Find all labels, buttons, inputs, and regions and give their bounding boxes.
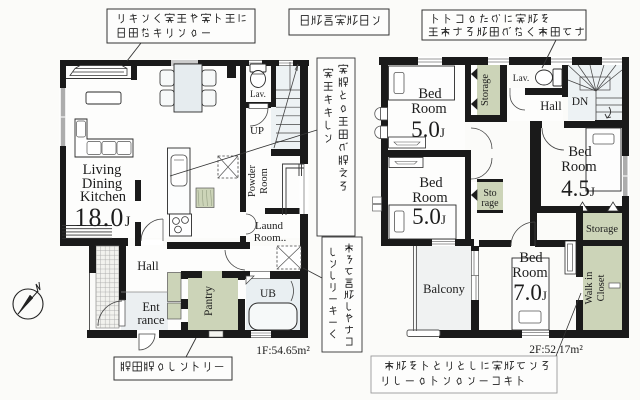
svg-text:Hall: Hall [540,99,562,113]
svg-text:4.5J: 4.5J [561,176,595,201]
svg-text:DN: DN [572,96,589,108]
svg-text:7.0J: 7.0J [513,280,547,305]
svg-text:Bed: Bed [568,144,592,160]
svg-text:Room: Room [561,159,597,175]
svg-text:Powder: Powder [247,164,258,197]
svg-text:Hall: Hall [137,259,159,273]
svg-text:UB: UB [260,288,276,300]
svg-text:Room: Room [259,168,270,194]
svg-text:5.0J: 5.0J [412,204,446,229]
svg-text:Closet: Closet [596,275,607,302]
svg-text:Room: Room [512,265,548,281]
svg-text:Room: Room [411,101,447,117]
svg-text:Lav.: Lav. [513,74,530,84]
svg-text:Balcony: Balcony [423,282,465,296]
svg-text:18.0J: 18.0J [74,203,131,232]
svg-text:1F:54.65m²: 1F:54.65m² [256,345,310,357]
svg-text:5.0J: 5.0J [411,117,445,142]
svg-text:Walk in: Walk in [584,271,595,304]
svg-text:rage: rage [481,198,499,209]
svg-text:Room..: Room.. [254,232,287,244]
svg-text:Bed: Bed [418,86,442,102]
svg-text:Bed: Bed [519,250,543,266]
svg-text:UP: UP [250,125,264,137]
svg-text:Bed: Bed [419,175,443,191]
svg-text:Storage: Storage [586,224,618,235]
svg-text:Lav.: Lav. [250,89,266,99]
svg-text:2F:52.17m²: 2F:52.17m² [529,344,583,356]
svg-text:Pantry: Pantry [203,286,215,316]
svg-text:Storage: Storage [480,74,491,106]
svg-text:Ent: Ent [142,300,160,314]
svg-text:Laund: Laund [255,220,284,232]
svg-text:rance: rance [137,313,165,327]
